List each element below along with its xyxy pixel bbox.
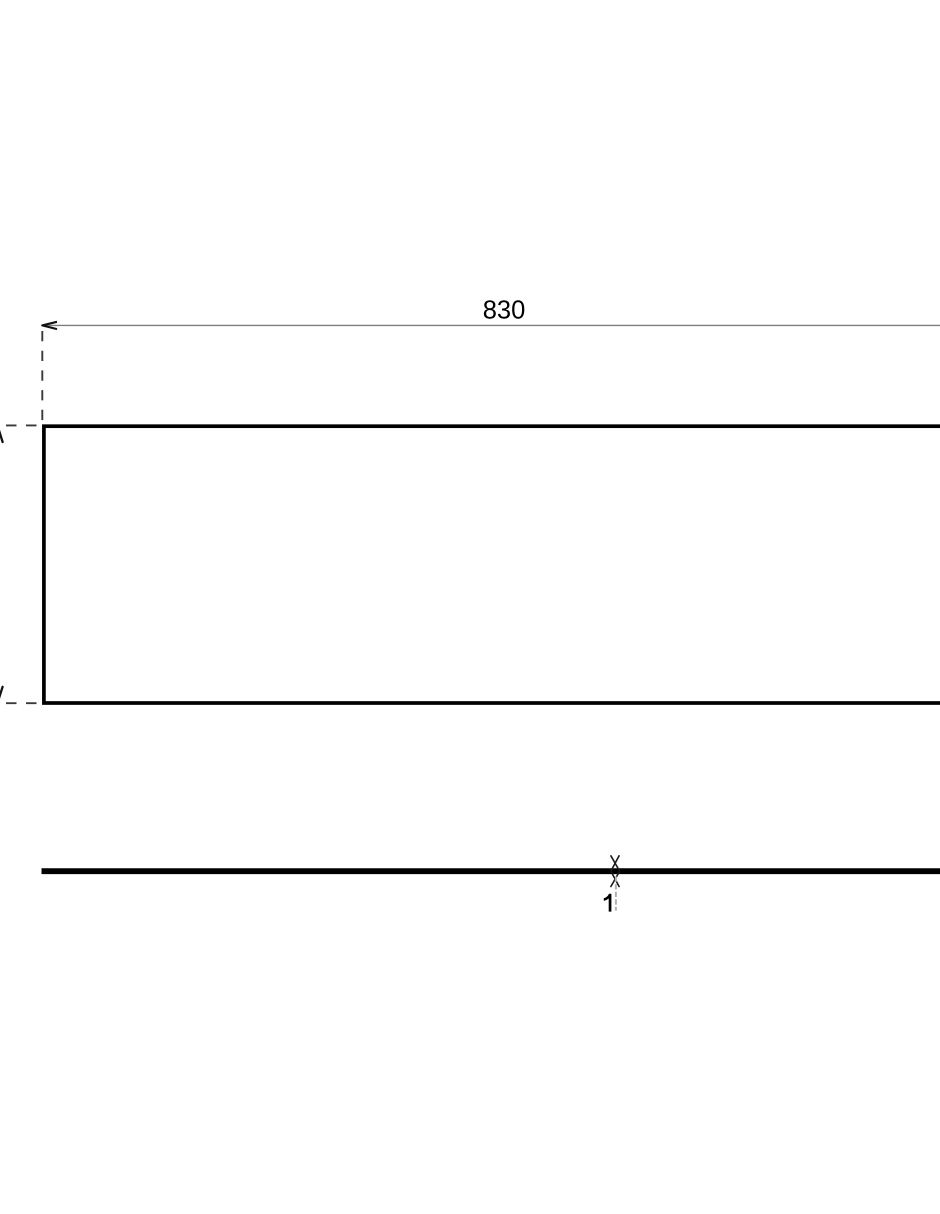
svg-text:830: 830 bbox=[483, 297, 526, 325]
